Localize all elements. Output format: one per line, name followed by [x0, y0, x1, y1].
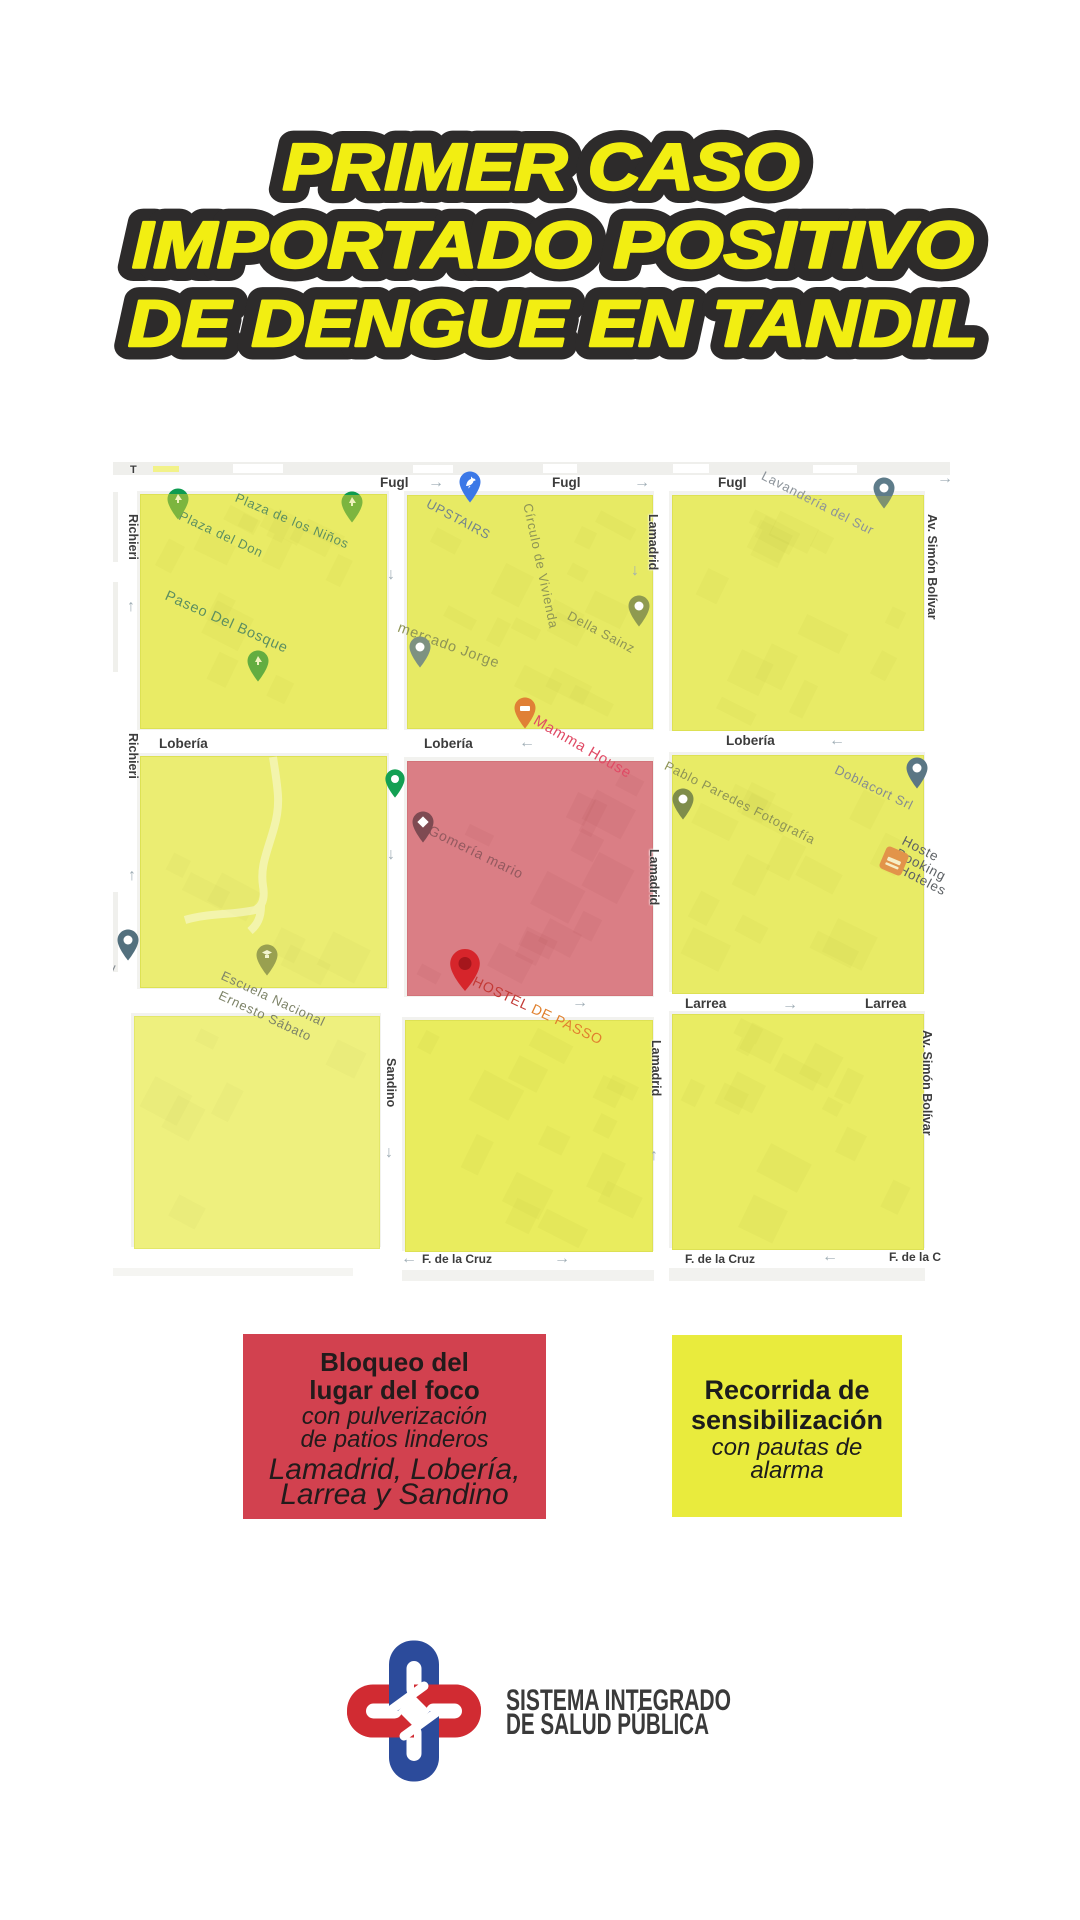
- svg-text:IMPORTADO POSITIVO: IMPORTADO POSITIVO: [132, 208, 974, 282]
- svg-text:DE DENGUE EN TANDIL: DE DENGUE EN TANDIL: [128, 286, 978, 360]
- svg-text:DE SALUD PÚBLICA: DE SALUD PÚBLICA: [506, 1707, 709, 1741]
- svg-text:PRIMER CASO: PRIMER CASO: [283, 130, 800, 204]
